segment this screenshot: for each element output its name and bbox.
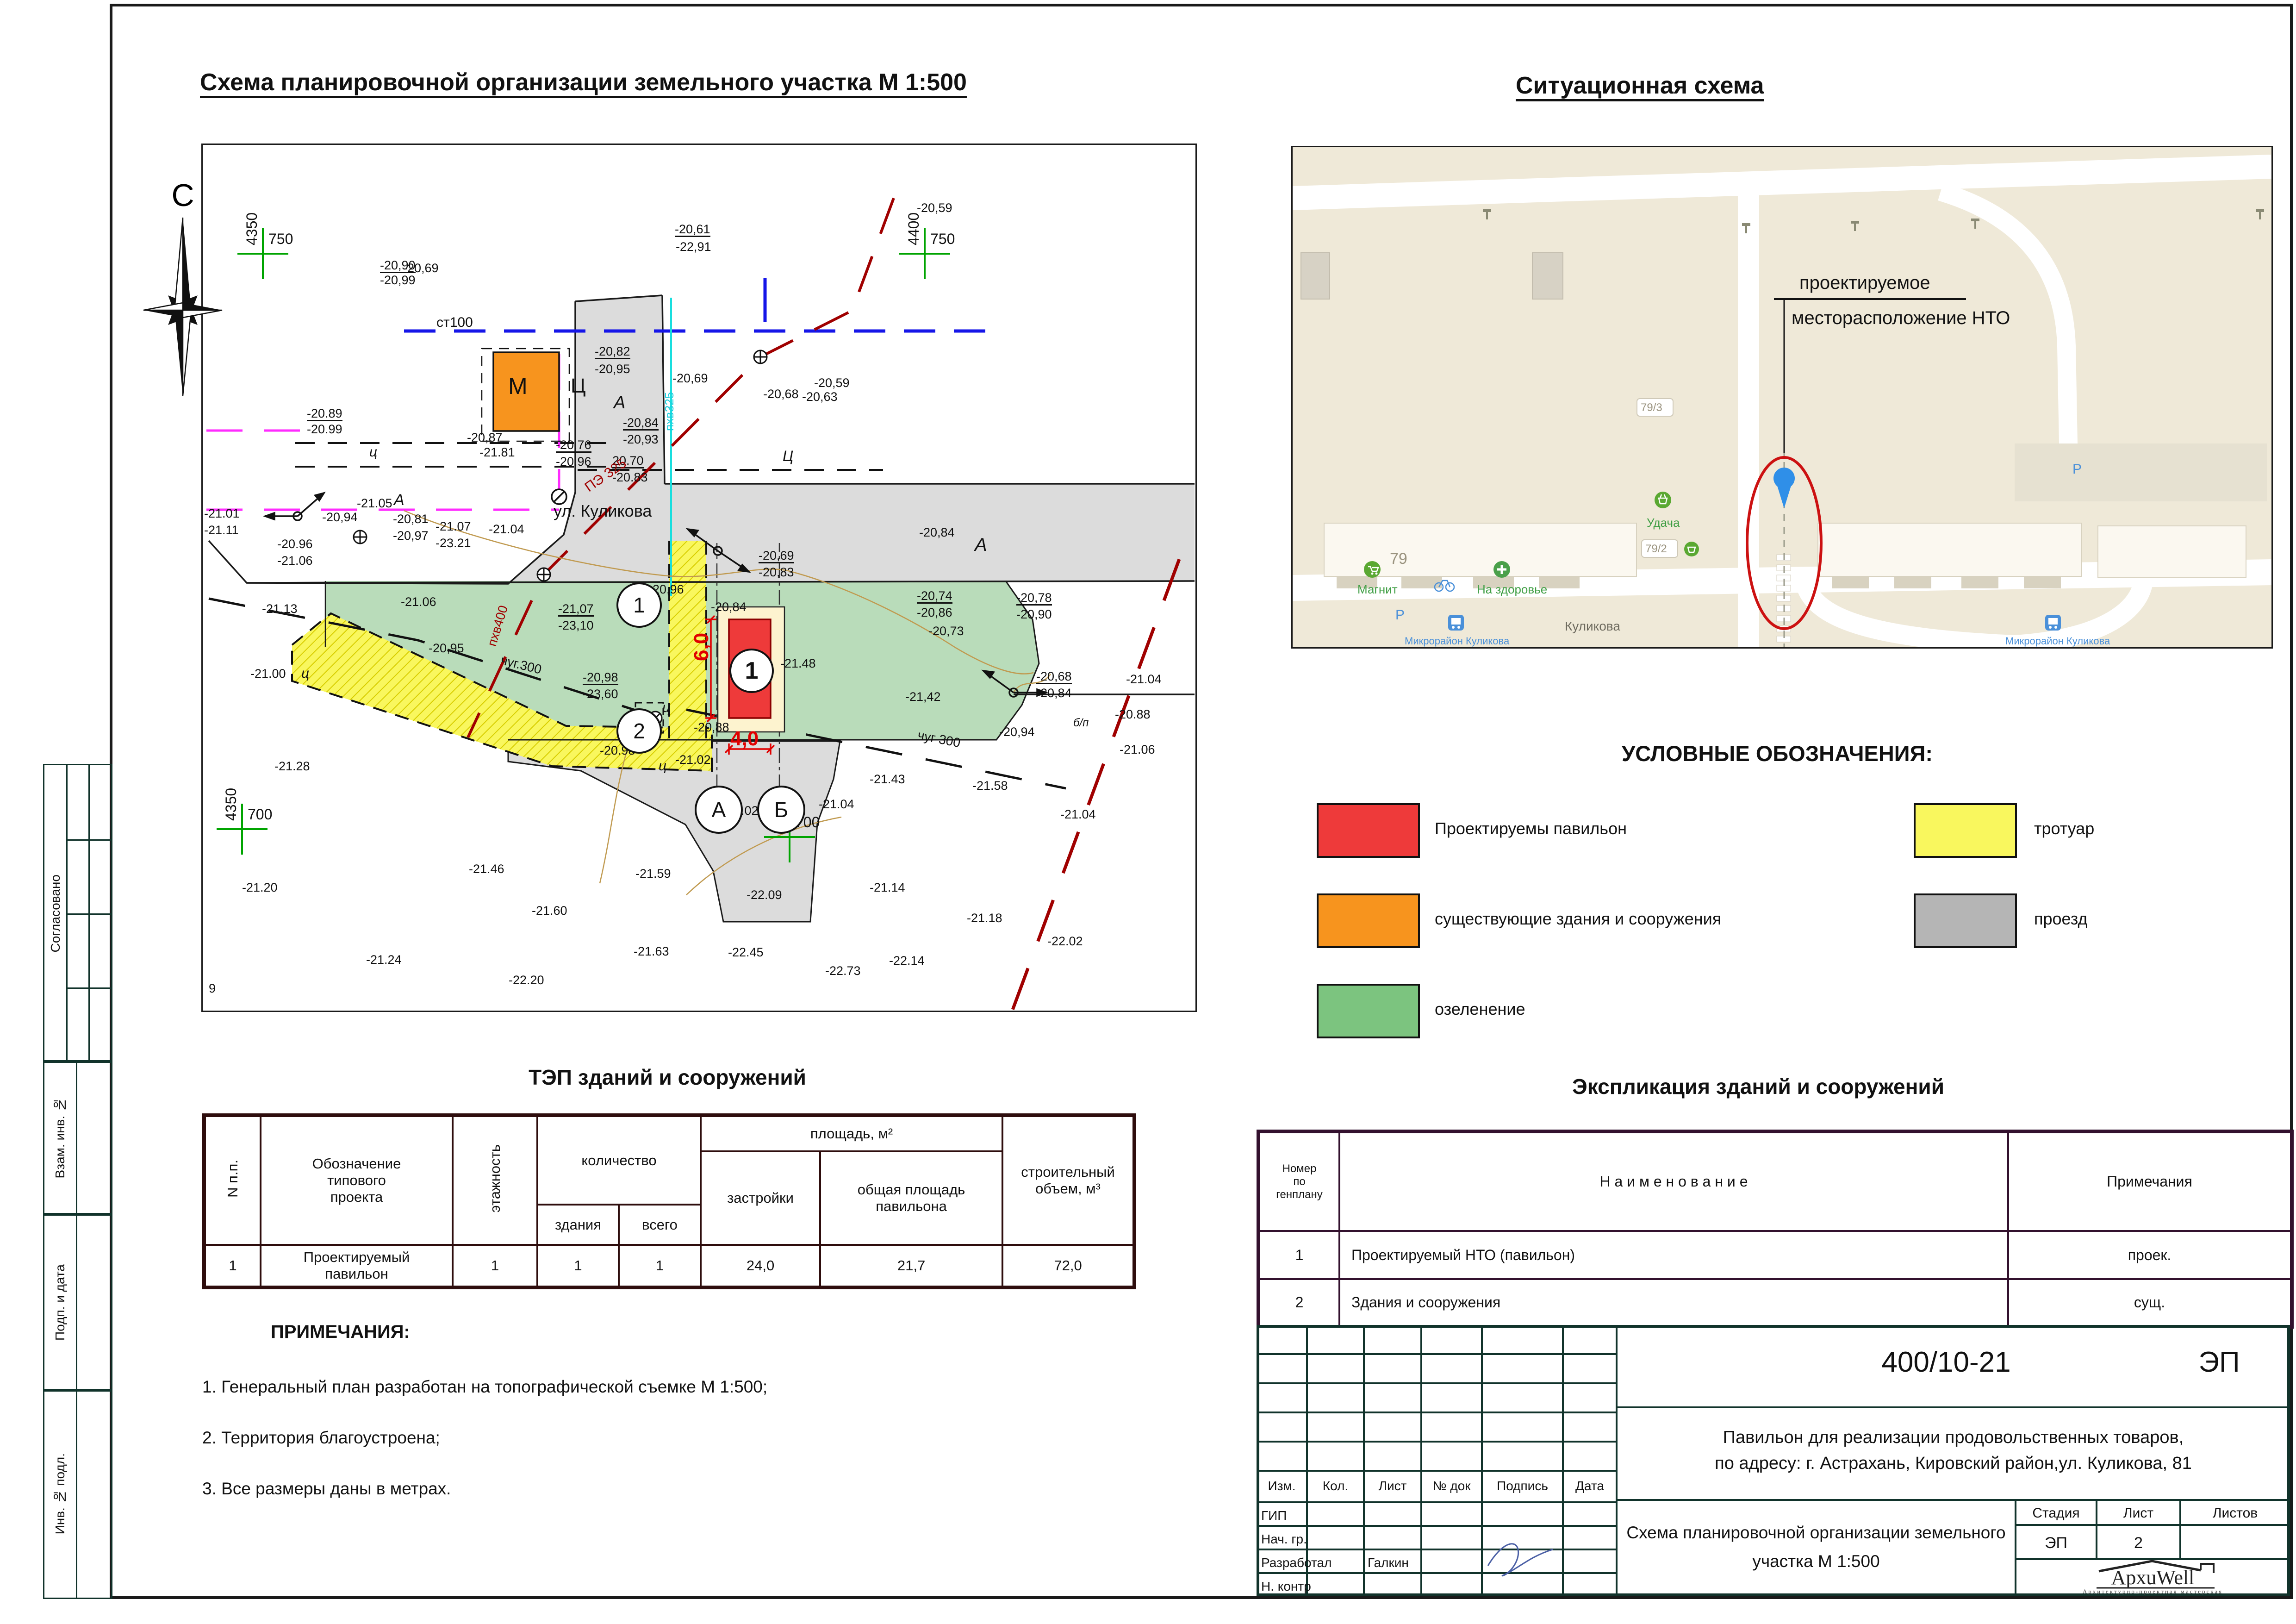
cross-coordinate-h: 750 (930, 231, 955, 247)
expl-h-note: Примечания (2008, 1131, 2292, 1231)
legend-title: УСЛОВНЫЕ ОБОЗНАЧЕНИЯ: (1500, 741, 2055, 766)
elevation-label: чуг.300 (499, 653, 543, 676)
tep-cell-oboz: Проектируемый павильон (261, 1245, 453, 1287)
side-strip-label: Подп. и дата (44, 1214, 77, 1390)
elevation-label: -20,61 (675, 223, 710, 237)
coordinate-cross (924, 228, 926, 279)
tep-row: 1 Проектируемый павильон 1 1 1 24,0 21,7… (204, 1245, 1134, 1287)
elevation-label: -22.73 (825, 964, 861, 977)
side-strip-line (88, 765, 90, 1062)
logo-text: ApxuWell (2016, 1566, 2290, 1589)
elevation-label: -23,60 (583, 687, 618, 700)
tb-col-izm: Изм. (1257, 1479, 1307, 1493)
legend-label: тротуар (2034, 803, 2094, 854)
map-label: проектируемое (1799, 273, 1930, 293)
elevation-label: -20,69 (403, 262, 439, 275)
cross-coordinate-h: 750 (268, 231, 293, 247)
elevation-label: -21.06 (1120, 743, 1155, 756)
tb-sheet-title-1: Схема планировочной организации земельно… (1617, 1523, 2016, 1543)
elevation-label: -21.59 (635, 867, 671, 880)
elevation-label: М (508, 374, 528, 399)
tep-h-zastr: застройки (701, 1151, 820, 1245)
elevation-label: -21.06 (277, 554, 313, 567)
cross-coordinate-h: 700 (248, 807, 272, 823)
tep-title: ТЭП зданий и сооружений (202, 1065, 1132, 1090)
legend-swatch (1317, 984, 1420, 1038)
tb-h-lists: Листов (2180, 1505, 2290, 1521)
side-strip-block: Инв. № подл. (43, 1389, 112, 1599)
elevation-label: -22,91 (676, 240, 711, 253)
tb-v-list: 2 (2097, 1534, 2180, 1552)
legend-label: Проектируемы павильон (1435, 803, 1627, 854)
side-strip-label: Согласовано (44, 765, 68, 1062)
legend-swatch (1317, 803, 1420, 858)
elevation-label: -22.02 (1047, 935, 1083, 948)
side-strip-label: Взам. инв. № (44, 1062, 77, 1214)
elevation-label: А (614, 394, 625, 412)
logo-subtext: Архитектурно-проектная мастерская (2016, 1588, 2290, 1595)
axis-bubble: А (695, 786, 743, 834)
elevation-label: -21.24 (366, 953, 402, 966)
legend-label: проезд (2034, 893, 2088, 944)
tb-col-list: Лист (1364, 1479, 1421, 1493)
elevation-label: ул. Куликова (554, 502, 652, 520)
note-item: 2. Территория благоустроена; (202, 1428, 440, 1448)
elevation-label: -20,95 (595, 362, 630, 375)
elevation-label: -21.18 (967, 912, 1002, 924)
tep-cell-vol: 72,0 (1002, 1245, 1134, 1287)
elevation-label: -21.13 (262, 602, 298, 615)
elevation-label: -21.48 (780, 657, 816, 670)
coordinate-cross (262, 228, 264, 279)
elevation-label: -20,84 (623, 416, 659, 431)
elevation-label: -20,99 (380, 274, 416, 287)
elevation-label: -20,84 (919, 526, 955, 539)
side-strip-block: Взам. инв. № (43, 1060, 112, 1216)
elevation-label: -20.99 (307, 423, 342, 436)
elevation-label: -20,83 (759, 566, 794, 579)
tep-h-zd: здания (537, 1205, 619, 1245)
tb-code: 400/10-21 (1812, 1346, 2080, 1379)
elevation-label: -23.21 (436, 537, 471, 550)
map-label: Удача (1647, 517, 1680, 529)
tep-cell-zastr: 24,0 (701, 1245, 820, 1287)
tb-col-date: Дата (1563, 1479, 1617, 1493)
map-label: На здоровье (1477, 583, 1547, 596)
elevation-label: -20.88 (1115, 708, 1151, 721)
elevation-label: -20.96 (277, 537, 313, 550)
elevation-label: чуг 300 (916, 728, 961, 750)
elevation-label: -21.01 (204, 507, 240, 520)
tep-cell-vs: 1 (619, 1245, 701, 1287)
elevation-label: -21.63 (634, 945, 669, 958)
north-arrow: С (137, 178, 229, 400)
elevation-label: 6,0 (691, 633, 712, 661)
note-item: 1. Генеральный план разработан на топогр… (202, 1377, 767, 1397)
elevation-label: -21.04 (489, 523, 524, 536)
elevation-label: -20,93 (623, 433, 659, 446)
elevation-label: -22.45 (728, 946, 764, 959)
elevation-label: А (975, 535, 987, 555)
tb-col-doc: № док (1421, 1479, 1482, 1493)
elevation-label: б/п (1073, 717, 1089, 729)
elevation-label: -20,87 (467, 431, 503, 444)
elevation-label: пхв400 (485, 604, 510, 648)
elevation-label: -21,07 (558, 602, 594, 617)
map-label: 79/2 (1645, 543, 1667, 555)
tb-row-gip: ГИП (1261, 1508, 1287, 1523)
elevation-label: -20,86 (917, 606, 952, 619)
plan-labels-layer: ст100-20,82-20,95-20,61-22,91-20,59-20,9… (203, 145, 1195, 1011)
elevation-label: Ц (571, 375, 586, 397)
elevation-label: -20,59 (814, 376, 850, 389)
elevation-label: -21.60 (532, 904, 567, 917)
tb-row-razrab: Разработал (1261, 1555, 1332, 1570)
side-strip-block: Согласовано (43, 764, 112, 1063)
coordinate-cross (241, 804, 243, 855)
side-strip-block: Подп. и дата (43, 1213, 112, 1392)
situation-map-panel: 7979/379/2УдачаМагнитНа здоровьеКуликова… (1291, 146, 2273, 649)
explication-table: Номер по генплану Н а и м е н о в а н и … (1257, 1130, 2294, 1329)
tb-project-1: Павильон для реализации продовольственны… (1617, 1428, 2290, 1448)
elevation-label: -21.02 (675, 753, 711, 766)
tb-v-stage: ЭП (2016, 1534, 2097, 1552)
pavilion-number: 1 (729, 649, 774, 693)
map-label: Микрорайон Куликова (2005, 636, 2110, 646)
tep-h-kol: количество (537, 1115, 701, 1205)
drawing-sheet: СогласованоВзам. инв. №Подп. и датаИнв. … (0, 0, 2296, 1624)
elevation-label: -20,81 (393, 512, 429, 525)
note-item: 3. Все размеры даны в метрах. (202, 1479, 451, 1499)
map-label: Микрорайон Куликова (1405, 636, 1509, 646)
tb-h-list: Лист (2097, 1505, 2180, 1521)
tep-h-oboz: Обозначение типового проекта (261, 1115, 453, 1245)
elevation-label: 4,0 (730, 728, 759, 750)
north-letter: С (171, 178, 194, 213)
elevation-label: пхв325 (663, 392, 676, 431)
elevation-label: -20,84 (711, 600, 747, 613)
expl-h-num: Номер по генплану (1258, 1131, 1339, 1231)
company-logo: ApxuWell Архитектурно-проектная мастерск… (2016, 1559, 2290, 1596)
elevation-label: -21.20 (242, 881, 278, 894)
cross-coordinate-v: 4350 (244, 212, 260, 245)
elevation-label: ц (659, 759, 666, 774)
tep-cell-opp: 21,7 (820, 1245, 1002, 1287)
elevation-label: -20,90 (1016, 608, 1052, 621)
elevation-label: -20,74 (917, 589, 952, 604)
legend-label: существующие здания и сооружения (1435, 893, 1721, 944)
tep-cell-zd: 1 (537, 1245, 619, 1287)
elevation-label: -23,10 (558, 619, 594, 632)
map-label: 79 (1390, 551, 1407, 568)
expl-row-1: 1 Проектируемый НТО (павильон) проек. (1258, 1231, 2292, 1279)
tb-project-2: по адресу: г. Астрахань, Кировский район… (1617, 1454, 2290, 1474)
elevation-label: 9 (209, 982, 216, 995)
elevation-label: -20,59 (917, 201, 952, 214)
expl-row-2: 2 Здания и сооружения сущ. (1258, 1279, 2292, 1327)
tep-table: N п.п. Обозначение типового проекта этаж… (202, 1113, 1136, 1289)
elevation-label: ц (301, 666, 309, 681)
legend: УСЛОВНЫЕ ОБОЗНАЧЕНИЯ: Проектируемы павил… (1291, 722, 2270, 1083)
elevation-label: -20.76 (556, 438, 591, 453)
elevation-label: -20,98 (583, 671, 618, 685)
axis-bubble: Б (757, 786, 805, 834)
elevation-label: -21,42 (905, 690, 941, 703)
elevation-label: .02 (741, 804, 759, 817)
elevation-label: -21.05 (357, 497, 392, 510)
elevation-label: -21.04 (1126, 673, 1162, 686)
notes-title: ПРИМЕЧАНИЯ: (271, 1322, 410, 1343)
elevation-label: -20,73 (928, 625, 964, 637)
elevation-label: -21.46 (469, 862, 504, 875)
elevation-label: -20,69 (759, 549, 794, 563)
elevation-label: -21.00 (250, 667, 286, 680)
elevation-label: -22.20 (509, 974, 544, 987)
elevation-label: -21.07 (436, 520, 471, 533)
tep-cell-npp: 1 (204, 1245, 261, 1287)
elevation-label: -20,94 (999, 725, 1035, 738)
map-label: Магнит (1357, 583, 1398, 596)
elevation-label: -20.96 (556, 455, 591, 468)
side-strip-label: Инв. № подл. (44, 1390, 77, 1598)
map-label: 79/3 (1641, 402, 1662, 413)
tb-developer: Галкин (1368, 1555, 1409, 1570)
tb-h-stage: Стадия (2016, 1505, 2097, 1521)
elevation-label: -20,63 (802, 390, 838, 403)
elevation-label: -20,97 (393, 529, 429, 542)
elevation-label: -22.09 (747, 888, 782, 901)
elevation-label: Ц (783, 449, 793, 464)
map-label: Р (1395, 608, 1405, 623)
elevation-label: -22.14 (889, 954, 925, 967)
elevation-label: -21.28 (274, 760, 310, 773)
elevation-label: ц (662, 700, 670, 715)
tb-row-nach: Нач. гр. (1261, 1532, 1307, 1547)
page-title-left: Схема планировочной организации земельно… (200, 69, 967, 96)
tb-col-sign: Подпись (1482, 1479, 1563, 1493)
tep-h-opp: общая площадь павильона (820, 1151, 1002, 1245)
site-plan-panel: ст100-20,82-20,95-20,61-22,91-20,59-20,9… (201, 144, 1197, 1012)
tep-cell-et: 1 (453, 1245, 537, 1287)
elevation-label: А (394, 492, 404, 509)
legend-label: озеленение (1435, 984, 1525, 1035)
map-label: Куликова (1565, 619, 1620, 633)
tep-h-pl: площадь, м² (701, 1115, 1002, 1151)
map-label: месторасположение НТО (1792, 308, 2010, 328)
elevation-label: -21.43 (870, 773, 905, 786)
elevation-label: ст100 (436, 315, 473, 330)
tep-h-vol: строительный объем, м³ (1002, 1115, 1134, 1245)
map-labels-layer: 7979/379/2УдачаМагнитНа здоровьеКуликова… (1293, 147, 2271, 647)
elevation-label: -21.81 (479, 446, 515, 459)
leader-bubble: 2 (616, 708, 662, 754)
elevation-label: -21.58 (972, 779, 1008, 792)
legend-swatch (1914, 893, 2017, 948)
elevation-label: -20,68 (763, 387, 799, 400)
elevation-label: -21.04 (1060, 808, 1096, 821)
elevation-label: -21.06 (401, 595, 436, 608)
elevation-label: -21.04 (819, 798, 854, 811)
title-block: 400/10-21 ЭП Павильон для реализации про… (1257, 1325, 2290, 1596)
elevation-label: -20,78 (1016, 591, 1052, 606)
elevation-label: ц (369, 445, 377, 460)
tep-h-et: этажность (453, 1115, 537, 1245)
leader-bubble: 1 (616, 582, 662, 628)
elevation-label: -20.89 (307, 407, 342, 421)
legend-swatch (1914, 803, 2017, 858)
elevation-label: -20,84 (1036, 687, 1072, 700)
cross-coordinate-v: 4350 (224, 788, 239, 821)
tb-row-nkontr: Н. контр (1261, 1579, 1311, 1594)
expl-h-name: Н а и м е н о в а н и е (1339, 1131, 2008, 1231)
elevation-label: -21.11 (204, 524, 239, 537)
explication-title: Экспликация зданий и сооружений (1257, 1074, 2260, 1099)
legend-swatch (1317, 893, 1420, 948)
elevation-label: -20,69 (672, 372, 708, 385)
elevation-label: -21.14 (870, 881, 905, 894)
tb-code-stage: ЭП (2164, 1346, 2275, 1379)
page-title-right: Ситуационная схема (1516, 72, 1764, 100)
elevation-label: -20,82 (595, 345, 630, 359)
tep-h-vs: всего (619, 1205, 701, 1245)
elevation-label: -20,68 (1036, 670, 1072, 684)
elevation-label: -20,88 (694, 721, 729, 734)
tep-h-npp: N п.п. (204, 1115, 261, 1245)
map-label: Р (2072, 462, 2082, 477)
elevation-label: -20,95 (429, 642, 464, 655)
tb-sheet-title-2: участка М 1:500 (1617, 1552, 2016, 1571)
tb-col-kol: Кол. (1307, 1479, 1364, 1493)
cross-coordinate-v: 4400 (906, 212, 922, 245)
elevation-label: -20,94 (322, 511, 358, 524)
